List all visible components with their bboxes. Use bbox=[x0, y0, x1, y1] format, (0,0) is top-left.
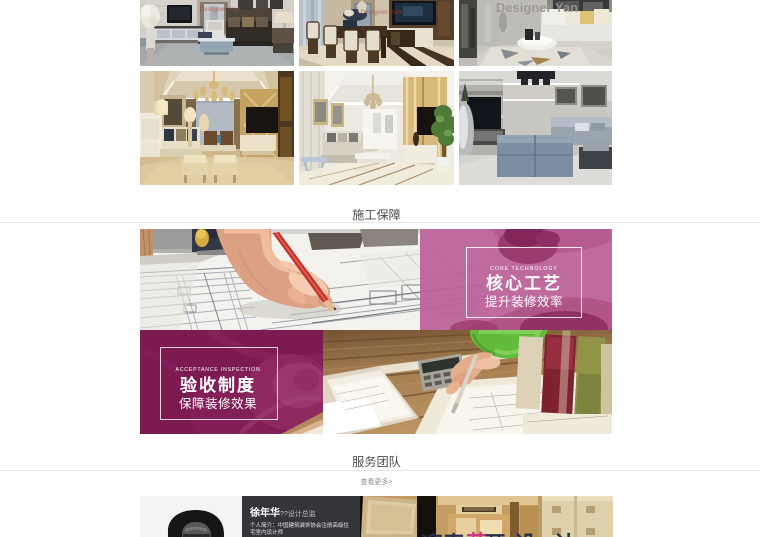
svg-text:Designer Yan: Designer Yan bbox=[199, 6, 240, 13]
svg-text:设: 设 bbox=[514, 532, 536, 537]
svg-text:ACCEPTANCE INSPECTION: ACCEPTANCE INSPECTION bbox=[175, 367, 260, 373]
svg-text:Designer Yan: Designer Yan bbox=[360, 9, 401, 16]
svg-text:Designer Yan: Designer Yan bbox=[496, 0, 578, 15]
svg-text:春: 春 bbox=[443, 532, 465, 537]
svg-text:计: 计 bbox=[554, 532, 576, 537]
svg-text:核心工艺: 核心工艺 bbox=[486, 273, 562, 293]
svg-text:CORE TECHNOLOGY: CORE TECHNOLOGY bbox=[490, 266, 558, 272]
svg-text:验收制度: 验收制度 bbox=[180, 375, 256, 395]
svg-text:提升装修效率: 提升装修效率 bbox=[485, 294, 563, 309]
svg-text:开: 开 bbox=[484, 532, 506, 537]
svg-text:迎: 迎 bbox=[421, 532, 443, 537]
svg-text:保障装修效果: 保障装修效果 bbox=[179, 396, 257, 411]
